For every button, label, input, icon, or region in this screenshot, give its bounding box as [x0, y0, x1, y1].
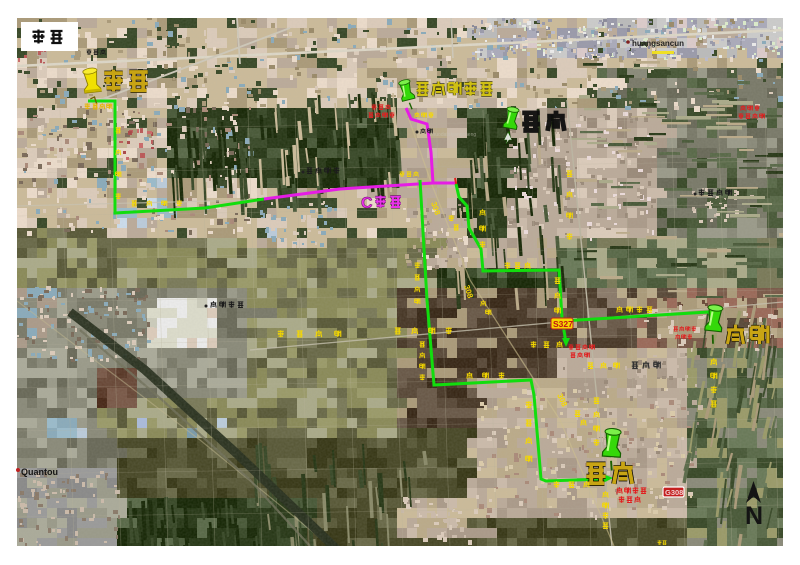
svg-text:zhuodataiyangcheng: zhuodataiyangcheng — [430, 132, 476, 138]
svg-text:G308: G308 — [665, 488, 683, 497]
svg-text:C: C — [361, 195, 373, 212]
svg-text:S327: S327 — [553, 319, 573, 329]
svg-text:Quantou: Quantou — [21, 467, 58, 477]
svg-text:N: N — [745, 502, 763, 530]
svg-text:huangsancun: huangsancun — [632, 39, 684, 48]
